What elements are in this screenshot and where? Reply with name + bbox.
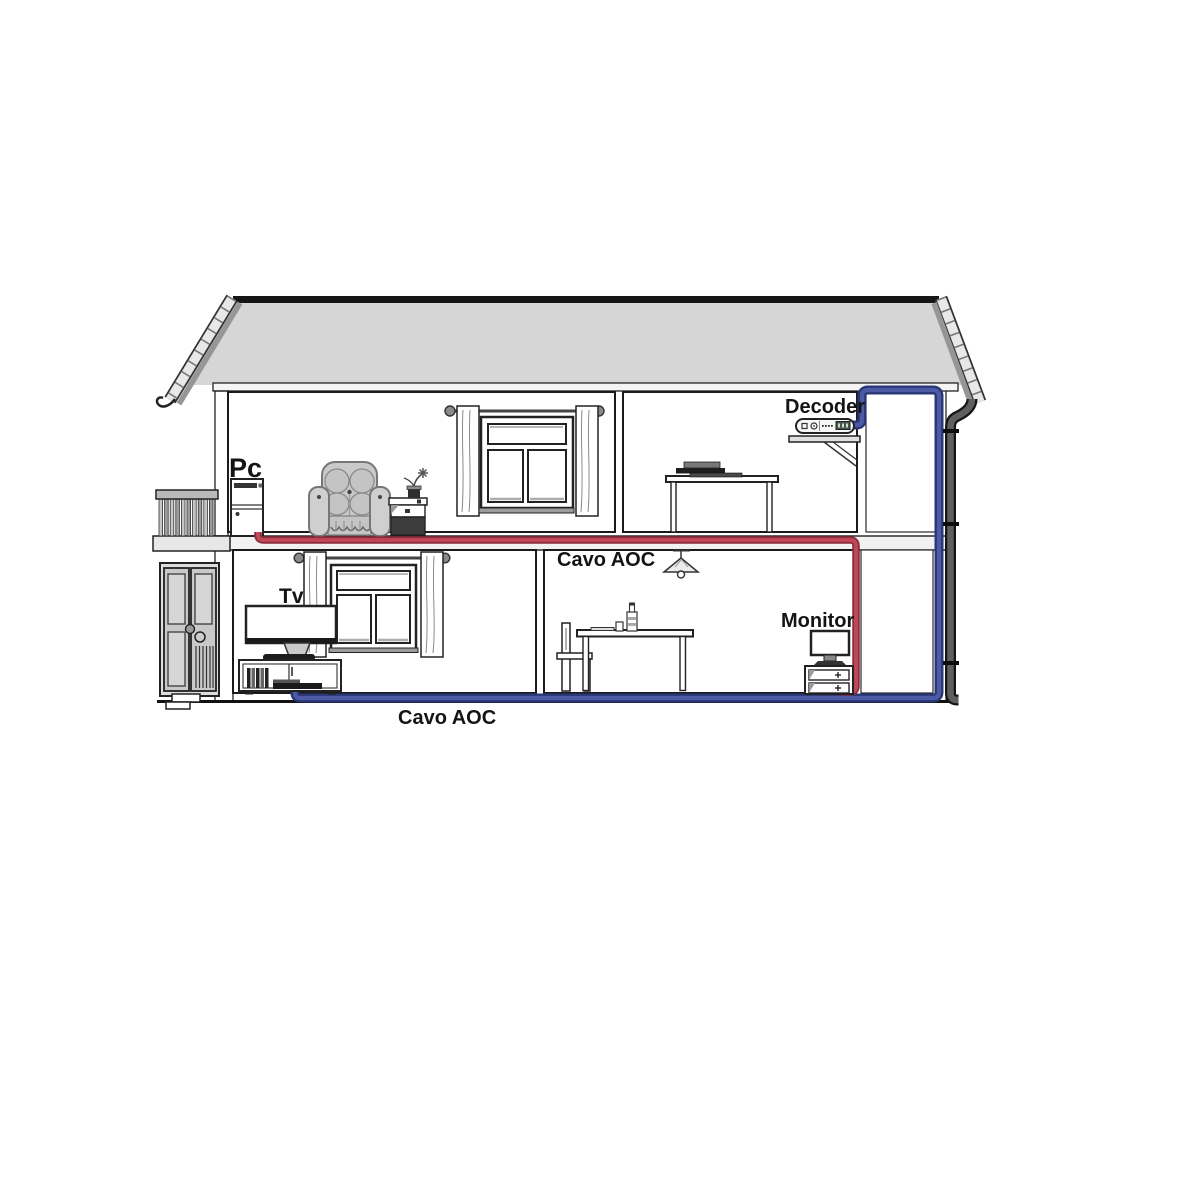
- plate: [591, 628, 614, 631]
- door-step-lower: [166, 702, 190, 709]
- tv-cabinet: [239, 660, 341, 695]
- door-step-upper: [172, 694, 200, 702]
- flower: [418, 468, 428, 478]
- monitor-label: Monitor: [781, 610, 855, 632]
- monitor-cabinet: [805, 666, 853, 694]
- dvd-player: [273, 683, 322, 689]
- curtain-right: [576, 406, 598, 516]
- downspout: [943, 399, 972, 700]
- eave-band: [213, 383, 958, 391]
- decoder-device: [796, 419, 854, 433]
- door-knob: [186, 625, 195, 634]
- pc-power-button: [236, 512, 240, 516]
- upper-window: [445, 406, 604, 516]
- cavo-aoc-label-kitchen: Cavo AOC: [557, 549, 655, 571]
- curtain-left: [457, 406, 479, 516]
- entry-door: [160, 563, 219, 709]
- door-handle: [195, 632, 205, 642]
- cavo-aoc-label-bottom: Cavo AOC: [398, 707, 496, 729]
- tv-screen: [246, 606, 336, 643]
- window-sill: [479, 508, 574, 513]
- pc-tower: [231, 479, 263, 536]
- tv-label: Tv: [279, 585, 304, 608]
- armrest-left: [309, 487, 329, 536]
- monitor-screen: [811, 631, 849, 655]
- chase-upper: [866, 393, 936, 532]
- pc-label: Pc: [229, 453, 262, 483]
- left-wall-upper: [215, 391, 228, 536]
- decoder-label: Decoder: [785, 396, 865, 418]
- armchair: [309, 462, 390, 536]
- cabinet-books: [247, 668, 269, 688]
- window-sill: [329, 648, 418, 653]
- chase-lower: [861, 550, 933, 693]
- lamp-bulb: [678, 571, 685, 578]
- nightstand: [389, 498, 427, 535]
- roof-plane: [181, 303, 972, 385]
- house-cabling-diagram: Pc Decoder Tv Monitor Cavo AOC Cavo AOC: [0, 0, 1200, 1200]
- glass: [616, 622, 623, 631]
- balcony-railing: [156, 490, 218, 536]
- roof-ridge: [233, 296, 939, 303]
- railing-top-rail: [156, 490, 218, 499]
- curtain-right: [421, 552, 443, 657]
- balcony-slab: [153, 536, 230, 551]
- armrest-right: [370, 487, 390, 536]
